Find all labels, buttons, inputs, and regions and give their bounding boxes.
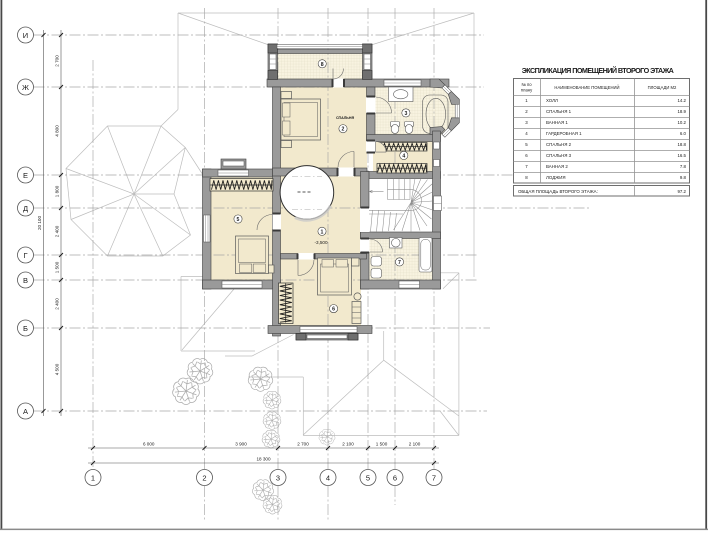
- svg-text:3 900: 3 900: [235, 442, 247, 447]
- svg-text:4 800: 4 800: [55, 125, 60, 137]
- svg-text:В: В: [23, 276, 28, 285]
- svg-text:6 000: 6 000: [143, 442, 155, 447]
- svg-text:2 400: 2 400: [55, 298, 60, 310]
- svg-text:ВАННАЯ 2: ВАННАЯ 2: [546, 164, 568, 169]
- svg-text:7: 7: [432, 473, 436, 482]
- svg-text:2 700: 2 700: [297, 442, 309, 447]
- svg-text:Д: Д: [23, 204, 28, 213]
- svg-text:ОБЩАЯ ПЛОЩАДЬ ВТОРОГО ЭТАЖА:: ОБЩАЯ ПЛОЩАДЬ ВТОРОГО ЭТАЖА:: [518, 189, 598, 194]
- svg-text:14.2: 14.2: [677, 98, 686, 103]
- svg-text:18 300: 18 300: [256, 457, 270, 462]
- svg-text:16.5: 16.5: [677, 153, 686, 158]
- svg-text:6.0: 6.0: [680, 131, 687, 136]
- svg-text:ВАННАЯ 1: ВАННАЯ 1: [546, 120, 568, 125]
- svg-text:Г: Г: [23, 251, 27, 260]
- svg-text:8: 8: [321, 62, 324, 68]
- svg-text:5: 5: [237, 217, 240, 223]
- svg-text:20 100: 20 100: [37, 216, 42, 230]
- svg-text:СПАЛЬНЯ 2: СПАЛЬНЯ 2: [546, 142, 572, 147]
- svg-text:2: 2: [342, 127, 345, 133]
- svg-text:1 500: 1 500: [376, 442, 388, 447]
- svg-text:А: А: [23, 407, 28, 416]
- svg-text:1: 1: [91, 473, 95, 482]
- svg-text:2 700: 2 700: [55, 55, 60, 67]
- svg-text:97.2: 97.2: [677, 189, 686, 194]
- svg-text:7.8: 7.8: [680, 164, 687, 169]
- svg-text:ХОЛЛ: ХОЛЛ: [546, 98, 558, 103]
- svg-text:1: 1: [321, 229, 324, 235]
- svg-text:ЛОДЖИЯ: ЛОДЖИЯ: [546, 175, 566, 180]
- svg-text:3: 3: [276, 473, 280, 482]
- svg-text:1 500: 1 500: [55, 261, 60, 273]
- svg-text:9.8: 9.8: [680, 175, 687, 180]
- svg-text:5: 5: [366, 473, 370, 482]
- svg-text:плану: плану: [521, 88, 533, 93]
- svg-text:18.8: 18.8: [677, 142, 686, 147]
- svg-text:2 400: 2 400: [55, 225, 60, 237]
- svg-text:4: 4: [326, 473, 330, 482]
- svg-text:6: 6: [393, 473, 397, 482]
- svg-text:Е: Е: [23, 171, 28, 180]
- svg-text:ЭКСПЛИКАЦИЯ ПОМЕЩЕНИЙ ВТОРОГО: ЭКСПЛИКАЦИЯ ПОМЕЩЕНИЙ ВТОРОГО ЭТАЖА: [522, 66, 674, 75]
- svg-text:3: 3: [404, 111, 407, 117]
- svg-text:1 800: 1 800: [55, 185, 60, 197]
- svg-text:2: 2: [202, 473, 206, 482]
- svg-text:-3,500: -3,500: [314, 240, 327, 245]
- svg-text:4 500: 4 500: [55, 363, 60, 375]
- svg-text:7: 7: [398, 260, 401, 266]
- svg-text:СПАЛЬНЯ 3: СПАЛЬНЯ 3: [546, 153, 572, 158]
- svg-text:И: И: [23, 31, 28, 40]
- svg-text:Б: Б: [23, 324, 28, 333]
- svg-text:Ж: Ж: [22, 83, 29, 92]
- svg-text:НАИМЕНОВАНИЕ ПОМЕЩЕНИЙ: НАИМЕНОВАНИЕ ПОМЕЩЕНИЙ: [554, 85, 619, 90]
- svg-text:№ по: № по: [521, 82, 532, 87]
- svg-text:2 100: 2 100: [409, 442, 421, 447]
- svg-text:10.2: 10.2: [677, 120, 686, 125]
- svg-text:6: 6: [332, 307, 335, 313]
- svg-text:18.9: 18.9: [677, 109, 686, 114]
- svg-text:ГАРДЕРОБНАЯ 1: ГАРДЕРОБНАЯ 1: [546, 131, 582, 136]
- svg-text:СПАЛЬНЯ: СПАЛЬНЯ: [336, 116, 355, 120]
- svg-text:ПЛОЩАДИ М2: ПЛОЩАДИ М2: [648, 85, 677, 90]
- svg-text:2 100: 2 100: [342, 442, 354, 447]
- svg-text:4: 4: [402, 153, 405, 159]
- svg-text:СПАЛЬНЯ 1: СПАЛЬНЯ 1: [546, 109, 572, 114]
